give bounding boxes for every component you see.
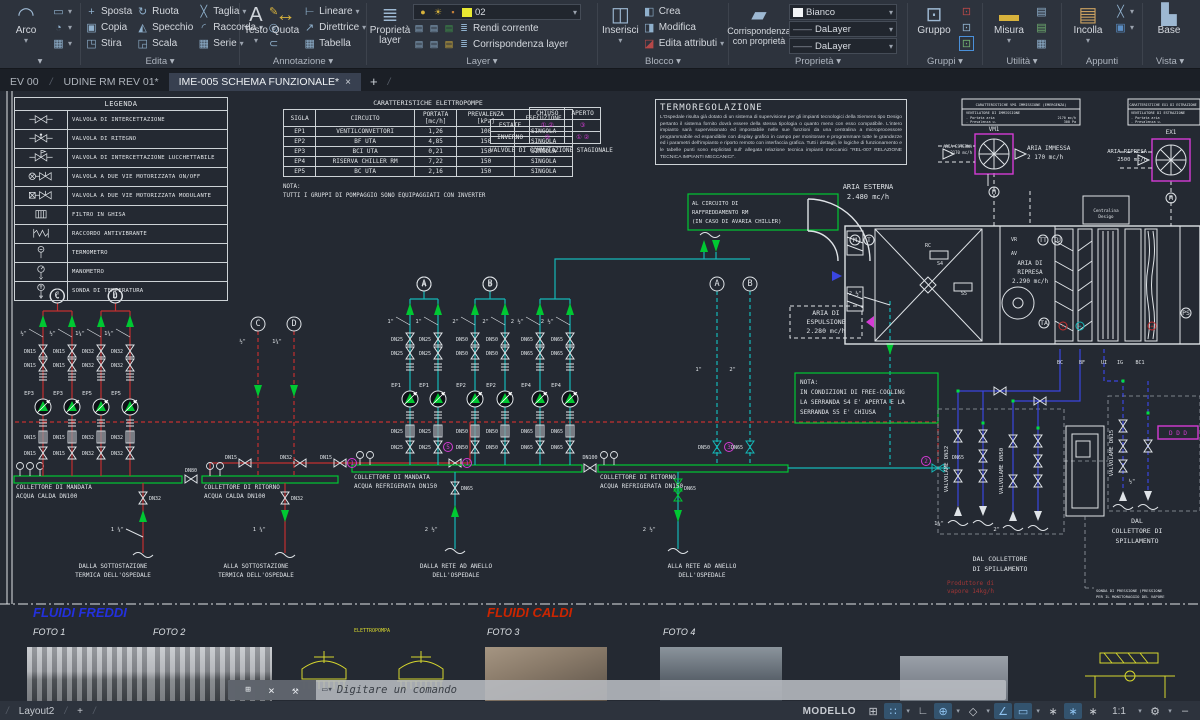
svg-text:ACQUA CALDA DN100: ACQUA CALDA DN100 [204, 493, 266, 500]
leader-icon: ↗ [303, 21, 316, 34]
layer-combo[interactable]: ● ☀ ▪ 02▾ [413, 4, 581, 20]
pump-risers: DN25DN25EP1DN25DN251"DN25DN25EP1DN25DN25… [20, 277, 578, 476]
svg-text:PER IL MONITORAGGIO DEL VAPORE: PER IL MONITORAGGIO DEL VAPORE [1096, 594, 1165, 599]
rotate-icon: ↻ [136, 5, 149, 18]
svg-text:ARIA DI: ARIA DI [1017, 260, 1043, 267]
svg-text:DN25: DN25 [419, 337, 431, 343]
foto4-label: FOTO 4 [663, 627, 695, 637]
svg-text:1": 1" [415, 319, 422, 325]
svg-text:DN32: DN32 [111, 435, 123, 441]
svg-text:VALVOLAME DN50: VALVOLAME DN50 [999, 448, 1005, 494]
ribbon-group-vista: ▙Base Vista ▾ [1143, 0, 1197, 68]
svg-text:1¼": 1¼" [75, 331, 85, 337]
svg-text:COLLETTORE DI RITORNO: COLLETTORE DI RITORNO [204, 484, 280, 491]
gruppi-group-label[interactable]: Gruppi ▾ [912, 55, 978, 68]
svg-text:DN15: DN15 [24, 435, 36, 441]
customization-gear[interactable]: ⚙ [1146, 703, 1164, 719]
sun-icon: ☀ [432, 7, 444, 18]
termo-body: L'Ospedale risulta già dotato di un sist… [660, 115, 902, 161]
close-icon[interactable]: × [268, 684, 275, 697]
tabella-button[interactable]: ▦Tabella [303, 36, 366, 51]
svg-text:DN50: DN50 [456, 351, 468, 357]
svg-text:1": 1" [387, 319, 394, 325]
ribbon-group-layer: ≣Proprietà layer ● ☀ ▪ 02▾ ▤▤▤≣Rendi cor… [367, 0, 597, 68]
ruota-button[interactable]: ↻Ruota [136, 4, 193, 19]
svg-text:- Prevalenza u.: - Prevalenza u. [1131, 120, 1162, 124]
svg-text:DN80: DN80 [185, 468, 197, 474]
svg-text:VM1: VM1 [989, 126, 1000, 133]
cut-button[interactable]: ╳▾ [1114, 4, 1134, 19]
calculator-button[interactable]: ▦ [1035, 36, 1048, 51]
svg-text:SERRANDA S5 E' CHIUSA: SERRANDA S5 E' CHIUSA [800, 409, 876, 416]
svg-text:VENTILATORE DI ESTRAZIONE: VENTILATORE DI ESTRAZIONE [1131, 111, 1185, 115]
ellipse-tool-button[interactable]: ◔▾ [52, 20, 72, 35]
svg-text:2500 mc/h: 2500 mc/h [1117, 157, 1147, 163]
copy-icon: ▣ [85, 21, 98, 34]
svg-text:BC1: BC1 [1135, 360, 1144, 366]
ortho-toggle[interactable]: ∟ [914, 703, 932, 719]
svg-text:2.280 mc/h: 2.280 mc/h [806, 327, 845, 335]
ellipse-icon: ◔ [52, 22, 65, 34]
svg-text:EP5: EP5 [111, 391, 121, 397]
wrench-icon[interactable]: ⚒ [292, 684, 299, 697]
svg-text:EP5: EP5 [82, 391, 92, 397]
svg-text:DN25: DN25 [391, 445, 403, 451]
ribbon-group-annotazione: ATesto▾ ↔Quota ⊢Lineare▾ ↗Direttrice▾ ▦T… [240, 0, 366, 68]
osnap-toggle[interactable]: ∠ [994, 703, 1012, 719]
move-icon: + [85, 6, 98, 18]
legend-row: MANOMETRO [15, 263, 227, 282]
svg-text:2: 2 [924, 458, 928, 465]
specchio-button[interactable]: ◭Specchio [136, 20, 193, 35]
lineweight-combo[interactable]: ——DaLayer▾ [789, 21, 897, 37]
modify-block-icon: ◨ [643, 21, 656, 34]
proprieta-layer-button[interactable]: ≣Proprietà layer [371, 2, 409, 46]
scale-icon: ◲ [136, 37, 149, 50]
group-label[interactable]: ▾ [4, 55, 76, 68]
tab-rev00[interactable]: EV 00 [0, 73, 49, 91]
insert-icon: ◫ [611, 4, 630, 26]
svg-text:1": 1" [695, 367, 702, 373]
base-view-icon: ▙ [1161, 4, 1176, 26]
svg-text:BF: BF [1079, 360, 1085, 366]
svg-text:Centralina: Centralina [1093, 208, 1119, 213]
dynamic-input-toggle[interactable]: ▭ [1014, 703, 1032, 719]
svg-text:TERMICA DELL'OSPEDALE: TERMICA DELL'OSPEDALE [75, 572, 151, 579]
svg-text:A: A [421, 279, 426, 289]
autocad-window: ◠Arco▾ ▭▾ ◔▾ ▦▾ ▾ +Sposta ▣Copia ◳Stira … [0, 0, 1200, 720]
command-input[interactable]: Digitare un comando [337, 684, 457, 696]
svg-text:DALLA SOTTOSTAZIONE: DALLA SOTTOSTAZIONE [79, 563, 148, 570]
svg-text:DN65: DN65 [461, 486, 473, 492]
photo-1 [27, 647, 150, 701]
svg-text:DN65: DN65 [684, 486, 696, 492]
svg-text:TERMICA DELL'OSPEDALE: TERMICA DELL'OSPEDALE [218, 572, 294, 579]
svg-text:S5: S5 [961, 291, 967, 297]
legend-row: VALVOLA A DUE VIE MOTORIZZATA ON/OFF [15, 168, 227, 187]
group-edit-button[interactable]: ⊡ [960, 20, 973, 35]
svg-text:300 Pa: 300 Pa [1064, 120, 1076, 124]
svg-text:DN15: DN15 [53, 349, 65, 355]
svg-text:B: B [487, 279, 492, 289]
vista-group-label[interactable]: Vista ▾ [1147, 55, 1193, 68]
svg-text:DN25: DN25 [419, 429, 431, 435]
rect-tool-button[interactable]: ▭▾ [52, 4, 72, 19]
svg-text:DN15: DN15 [53, 451, 65, 457]
hatch-tool-button[interactable]: ▦▾ [52, 36, 72, 51]
svg-text:COLLETTORE DI MANDATA: COLLETTORE DI MANDATA [16, 484, 92, 491]
svg-text:B: B [747, 279, 752, 289]
legend-row: VALVOLA DI RITEGNO [15, 130, 227, 149]
stira-button[interactable]: ◳Stira [85, 36, 132, 51]
color-swatch [793, 8, 803, 17]
ungroup-button[interactable]: ⊡ [960, 4, 973, 19]
quota-button[interactable]: ↔Quota [272, 2, 299, 36]
svg-text:SONDA DI PRESSIONE (PRESSIONE: SONDA DI PRESSIONE (PRESSIONE [1096, 588, 1163, 593]
svg-text:- Prevalenza u.: - Prevalenza u. [966, 120, 997, 124]
svg-text:ELETTROPOMPA: ELETTROPOMPA [354, 628, 390, 634]
svg-text:AV: AV [1011, 251, 1017, 257]
paste-icon: ▤ [1079, 4, 1098, 26]
svg-text:DN65: DN65 [952, 455, 964, 461]
command-line[interactable]: ⊞ × ⚒ ▭▾ Digitare un comando [228, 680, 1006, 700]
svg-text:CARATTERISTICHE VM1 IMMISSIONE: CARATTERISTICHE VM1 IMMISSIONE (EMERGENZ… [976, 103, 1067, 107]
isodraft-toggle[interactable]: ◇ [964, 703, 982, 719]
svg-text:EP2: EP2 [486, 383, 496, 389]
seasonal-header-chiuso: CHIUSO [530, 108, 565, 120]
svg-text:ACQUA REFRIGERATA DN150: ACQUA REFRIGERATA DN150 [600, 483, 683, 490]
array-icon: ▦ [197, 37, 210, 50]
close-tab-icon[interactable]: × [345, 77, 351, 88]
pump-row: EP4RISERVA CHILLER RM7,22150SINGOLA [284, 157, 573, 167]
ribbon-group-gruppi: ⊡Gruppo ⊡ ⊡ ⊡ Gruppi ▾ [908, 0, 982, 68]
legend-row: VALVOLA DI INTERCETTAZIONE [15, 111, 227, 130]
edita-group-label[interactable]: Edita ▾ [85, 55, 235, 68]
svg-text:DN15: DN15 [24, 363, 36, 369]
svg-text:ACQUA REFRIGERATA DN150: ACQUA REFRIGERATA DN150 [354, 483, 437, 490]
svg-text:1 ¼": 1 ¼" [111, 527, 124, 533]
group-icon: ⊡ [926, 4, 943, 26]
svg-text:DN50: DN50 [486, 429, 498, 435]
lineare-button[interactable]: ⊢Lineare▾ [303, 4, 366, 19]
svg-text:DN32: DN32 [280, 455, 292, 461]
svg-text:DN32: DN32 [149, 496, 161, 502]
dimension-icon: ↔ [276, 4, 296, 26]
svg-text:UI: UI [1101, 360, 1107, 366]
steam-piping [938, 349, 1200, 588]
svg-text:vapore 14kg/h: vapore 14kg/h [947, 588, 994, 595]
seasonal-caption: VALVOLE DI COMMUTAZIONE STAGIONALE [490, 147, 613, 154]
stretch-icon: ◳ [85, 37, 98, 50]
utilita-group-label[interactable]: Utilità ▾ [987, 55, 1057, 68]
legend-row: SONDA DI TEMPERATURA [15, 282, 227, 300]
svg-text:DN15: DN15 [225, 455, 237, 461]
svg-text:2.480 mc/h: 2.480 mc/h [847, 193, 889, 201]
linetype-combo[interactable]: ——DaLayer▾ [789, 38, 897, 54]
svg-text:DN32: DN32 [111, 349, 123, 355]
svg-text:VR: VR [1011, 237, 1018, 243]
color-combo[interactable]: Bianco▾ [789, 4, 897, 20]
testo-button[interactable]: ATesto▾ [244, 2, 268, 46]
group-select-button[interactable]: ⊡ [960, 36, 973, 51]
new-layout-button[interactable]: + [69, 706, 91, 717]
svg-text:DN65: DN65 [551, 337, 563, 343]
svg-text:M: M [853, 236, 857, 244]
snap-toggle[interactable]: ∷ [884, 703, 902, 719]
fluidi-caldi-label: FLUIDI CALDI [487, 605, 572, 620]
misura-button[interactable]: ▬Misura▾ [987, 2, 1031, 46]
svg-text:PS: PS [1182, 309, 1190, 317]
svg-text:DN50: DN50 [456, 337, 468, 343]
base-button[interactable]: ▙Base [1147, 2, 1191, 36]
modifica-button[interactable]: ◨Modifica [643, 20, 724, 35]
svg-text:½": ½" [49, 330, 56, 337]
tab-udine-rm[interactable]: UDINE RM REV 01* [54, 73, 169, 91]
svg-text:1: 1 [350, 460, 354, 467]
svg-text:(IN CASO DI AVARIA CHILLER): (IN CASO DI AVARIA CHILLER) [692, 219, 781, 225]
svg-text:1¼": 1¼" [934, 521, 944, 527]
svg-text:DN25: DN25 [391, 351, 403, 357]
foto1-label: FOTO 1 [33, 627, 65, 637]
annotation-visibility-toggle[interactable]: ∗ [1044, 703, 1062, 719]
quick-calc-button[interactable]: ▤ [1035, 20, 1048, 35]
svg-text:D: D [291, 319, 296, 329]
mirror-icon: ◭ [136, 21, 149, 34]
measure-icon: ▬ [999, 4, 1019, 26]
table-icon: ▦ [303, 37, 316, 50]
svg-text:1¼": 1¼" [104, 331, 114, 337]
foto3-label: FOTO 3 [487, 627, 519, 637]
drawing-tabs: EV 00 / UDINE RM REV 01* IME-005 SCHEMA … [0, 69, 1200, 91]
svg-text:RIPRESA: RIPRESA [1017, 269, 1043, 276]
svg-text:ESPULSIONE: ESPULSIONE [806, 318, 845, 326]
blocco-group-label[interactable]: Blocco ▾ [602, 55, 724, 68]
svg-text:ALLA SOTTOSTAZIONE: ALLA SOTTOSTAZIONE [223, 563, 288, 570]
legend-row: FILTRO IN GHISA [15, 206, 227, 225]
direttrice-button[interactable]: ↗Direttrice▾ [303, 20, 366, 35]
svg-text:DN100: DN100 [582, 455, 597, 461]
svg-text:M: M [992, 188, 996, 196]
svg-text:DN50: DN50 [698, 445, 710, 451]
svg-text:TA: TA [1040, 319, 1048, 327]
annotazione-group-label[interactable]: Annotazione ▾ [244, 55, 362, 68]
svg-text:DN32: DN32 [111, 451, 123, 457]
svg-text:2": 2" [729, 367, 736, 373]
svg-text:ARIA ESTERNA: ARIA ESTERNA [843, 183, 894, 191]
svg-text:DN25: DN25 [391, 429, 403, 435]
svg-text:DN50: DN50 [456, 445, 468, 451]
svg-text:DN50: DN50 [486, 337, 498, 343]
tab-ime005-active[interactable]: IME-005 SCHEMA FUNZIONALE*× [169, 73, 361, 91]
scala-button[interactable]: ◲Scala [136, 36, 193, 51]
gruppo-button[interactable]: ⊡Gruppo [912, 2, 956, 36]
edita-attributi-button[interactable]: ◪Edita attributi▾ [643, 36, 724, 51]
incolla-button[interactable]: ▤Incolla▾ [1066, 2, 1110, 46]
svg-text:IN CONDIZIONI DI FREE-COOLING: IN CONDIZIONI DI FREE-COOLING [800, 389, 905, 396]
svg-text:ACQUA CALDA DN100: ACQUA CALDA DN100 [16, 493, 78, 500]
layer-group-label[interactable]: Layer ▾ [371, 55, 593, 68]
svg-text:DN25: DN25 [419, 445, 431, 451]
svg-text:2 ½": 2 ½" [643, 526, 656, 533]
svg-text:CARATTERISTICHE EX1 DI ESTRAZI: CARATTERISTICHE EX1 DI ESTRAZIONE [1129, 103, 1196, 107]
svg-text:TT: TT [1039, 236, 1047, 244]
rendi-corrente-button[interactable]: ▤▤▤≣Rendi corrente [413, 21, 593, 36]
svg-text:DN50: DN50 [486, 445, 498, 451]
svg-text:½": ½" [1129, 478, 1136, 485]
svg-text:DELL'OSPEDALE: DELL'OSPEDALE [433, 572, 480, 579]
crea-button[interactable]: ◧Crea [643, 4, 724, 19]
ribbon-group-draw: ◠Arco▾ ▭▾ ◔▾ ▦▾ ▾ [0, 0, 80, 68]
svg-text:DN65: DN65 [731, 445, 743, 451]
svg-text:DN50: DN50 [486, 351, 498, 357]
svg-text:DAL COLLETTORE: DAL COLLETTORE [973, 555, 1028, 563]
svg-text:D D D: D D D [1169, 430, 1187, 437]
svg-text:LA SERRANDA S4 E' APERTA E LA: LA SERRANDA S4 E' APERTA E LA [800, 399, 905, 406]
svg-text:1 ¼": 1 ¼" [253, 527, 266, 533]
svg-text:2 170 mc/h: 2 170 mc/h [1027, 154, 1064, 161]
svg-text:ALLA RETE AD ANELLO: ALLA RETE AD ANELLO [668, 563, 737, 570]
linear-icon: ⊢ [303, 5, 316, 18]
svg-text:2170 mc/h: 2170 mc/h [950, 150, 972, 155]
quick-select-button[interactable]: ▤ [1035, 4, 1048, 19]
svg-text:DN15: DN15 [53, 435, 65, 441]
svg-text:½": ½" [20, 330, 27, 337]
inserisci-button[interactable]: ◫Inserisci▾ [602, 2, 639, 46]
svg-text:DALLA RETE AD ANELLO: DALLA RETE AD ANELLO [420, 563, 493, 570]
hatch-icon: ▦ [52, 37, 65, 50]
svg-text:EP1: EP1 [391, 383, 401, 389]
svg-text:RC: RC [925, 243, 931, 249]
fillet-icon: ◜ [197, 21, 210, 34]
svg-text:T: T [867, 236, 871, 244]
svg-text:TU: TU [1053, 236, 1061, 244]
layer-color-swatch [462, 8, 472, 17]
copy-clip-button[interactable]: ▣▾ [1114, 20, 1134, 35]
recent-commands-icon[interactable]: ▭▾ [322, 685, 333, 695]
svg-text:½": ½" [239, 338, 246, 345]
corrispondenza-layer-button[interactable]: ▤▤▤≣Corrispondenza layer [413, 37, 593, 52]
ribbon-group-edita: +Sposta ▣Copia ◳Stira ↻Ruota ◭Specchio ◲… [81, 0, 239, 68]
layers-icon: ≣ [382, 4, 399, 26]
proprieta-group-label[interactable]: Proprietà ▾ [733, 55, 903, 68]
svg-text:VENTILATORE DI IMMISSIONE: VENTILATORE DI IMMISSIONE [966, 111, 1020, 115]
svg-text:BC: BC [1057, 360, 1063, 366]
svg-text:DN25: DN25 [419, 351, 431, 357]
ribbon-group-utilita: ▬Misura▾ ▤ ▤ ▦ Utilità ▾ [983, 0, 1061, 68]
modello-button[interactable]: MODELLO [803, 706, 857, 717]
arc-button[interactable]: ◠Arco▾ [4, 2, 48, 46]
command-line-controls: ⊞ × ⚒ [228, 680, 316, 700]
autoscale-toggle[interactable]: ∗ [1064, 703, 1082, 719]
polar-toggle[interactable]: ⊕ [934, 703, 952, 719]
svg-text:EP1: EP1 [419, 383, 429, 389]
svg-text:DN50: DN50 [456, 429, 468, 435]
svg-text:2.290 mc/h: 2.290 mc/h [1012, 278, 1049, 285]
create-block-icon: ◧ [643, 5, 656, 18]
svg-text:DN25: DN25 [391, 337, 403, 343]
svg-text:COLLETTORE DI MANDATA: COLLETTORE DI MANDATA [354, 474, 430, 481]
layout2-tab[interactable]: Layout2 [11, 706, 63, 717]
svg-text:2 ½": 2 ½" [541, 318, 554, 325]
ribbon-group-appunti: ▤Incolla▾ ╳▾ ▣▾ Appunti [1062, 0, 1142, 68]
rectangle-icon: ▭ [52, 5, 65, 18]
status-bar: / Layout2 / + / MODELLO ⊞ ∷ ▾ ∟ ⊕ ▾ ◇ ▾ … [0, 701, 1200, 720]
model-space-canvas[interactable]: DN25DN25EP1DN25DN251"DN25DN25EP1DN25DN25… [0, 91, 1200, 701]
annotation-scale-icon[interactable]: ∗ [1084, 703, 1102, 719]
isolate-objects-icon[interactable]: ‒ [1176, 703, 1194, 719]
arc-icon: ◠ [17, 4, 34, 26]
svg-text:DN15: DN15 [24, 451, 36, 457]
svg-text:Desigo: Desigo [1098, 214, 1114, 219]
svg-text:ARIA DI: ARIA DI [812, 309, 839, 317]
appunti-group-label: Appunti [1066, 55, 1138, 68]
termoregolazione-box: TERMOREGOLAZIONE L'Ospedale risulta già … [655, 99, 907, 165]
svg-text:RAFFREDDAMENTO RM: RAFFREDDAMENTO RM [692, 210, 749, 216]
svg-text:A: A [714, 279, 719, 289]
svg-text:2 ½": 2 ½" [849, 290, 862, 297]
match-properties-icon: ▰ [751, 4, 766, 26]
svg-text:DN32: DN32 [82, 435, 94, 441]
svg-text:DN65: DN65 [521, 351, 533, 357]
svg-text:M: M [1169, 194, 1173, 202]
svg-text:DN65: DN65 [551, 445, 563, 451]
pump-row: EP5BC UTA2,16150SINGOLA [284, 167, 573, 177]
termo-title: TERMOREGOLAZIONE [660, 103, 902, 113]
svg-text:C: C [255, 319, 260, 329]
svg-text:DN32: DN32 [291, 496, 303, 502]
grid-toggle[interactable]: ⊞ [864, 703, 882, 719]
svg-text:DI SPILLAMENTO: DI SPILLAMENTO [973, 565, 1028, 573]
svg-text:2": 2" [993, 527, 1000, 533]
trim-icon: ╳ [197, 5, 210, 18]
svg-text:DAL: DAL [1131, 517, 1143, 525]
svg-text:SPILLAMENTO: SPILLAMENTO [1115, 537, 1158, 545]
svg-text:DN65: DN65 [551, 429, 563, 435]
fluidi-freddi-label: FLUIDI FREDDI [33, 605, 127, 620]
svg-text:2": 2" [452, 319, 459, 325]
svg-text:EP4: EP4 [551, 383, 562, 389]
sposta-button[interactable]: +Sposta [85, 4, 132, 19]
svg-text:ARIA RIPRESA: ARIA RIPRESA [1107, 149, 1147, 155]
svg-text:5: 5 [446, 444, 450, 451]
svg-text:DELL'OSPEDALE: DELL'OSPEDALE [679, 572, 726, 579]
match-properties-button[interactable]: ▰Corrispondenza con proprietà [733, 2, 785, 46]
svg-text:VALVOLAME DN32: VALVOLAME DN32 [944, 446, 950, 492]
svg-text:2": 2" [482, 319, 489, 325]
ribbon: ◠Arco▾ ▭▾ ◔▾ ▦▾ ▾ +Sposta ▣Copia ◳Stira … [0, 0, 1200, 69]
new-drawing-button[interactable]: + [361, 72, 387, 91]
svg-text:COLLETTORE DI: COLLETTORE DI [1112, 527, 1163, 535]
customize-icon[interactable]: ⊞ [245, 685, 250, 695]
svg-text:DN32: DN32 [82, 363, 94, 369]
text-icon: A [249, 4, 262, 26]
copia-button[interactable]: ▣Copia [85, 20, 132, 35]
legend-row: VALVOLA DI INTERCETTAZIONE LUCCHETTABILE [15, 149, 227, 168]
bulb-icon: ● [417, 7, 429, 17]
svg-text:DN15: DN15 [24, 349, 36, 355]
foto2-label: FOTO 2 [153, 627, 185, 637]
pump-table-nota: NOTA: [283, 184, 300, 190]
svg-text:EP3: EP3 [53, 391, 63, 397]
svg-text:DN32: DN32 [111, 363, 123, 369]
legend-table: LEGENDA VALVOLA DI INTERCETTAZIONEVALVOL… [14, 97, 228, 301]
svg-text:NOTA:: NOTA: [800, 379, 818, 386]
svg-text:ARIA ESTERNA: ARIA ESTERNA [943, 144, 972, 149]
svg-text:COLLETTORE DI RITORNO: COLLETTORE DI RITORNO [600, 474, 676, 481]
legend-row: TERMOMETRO [15, 244, 227, 263]
svg-text:DN15: DN15 [53, 363, 65, 369]
annotation-scale-value[interactable]: 1:1 [1104, 706, 1134, 717]
